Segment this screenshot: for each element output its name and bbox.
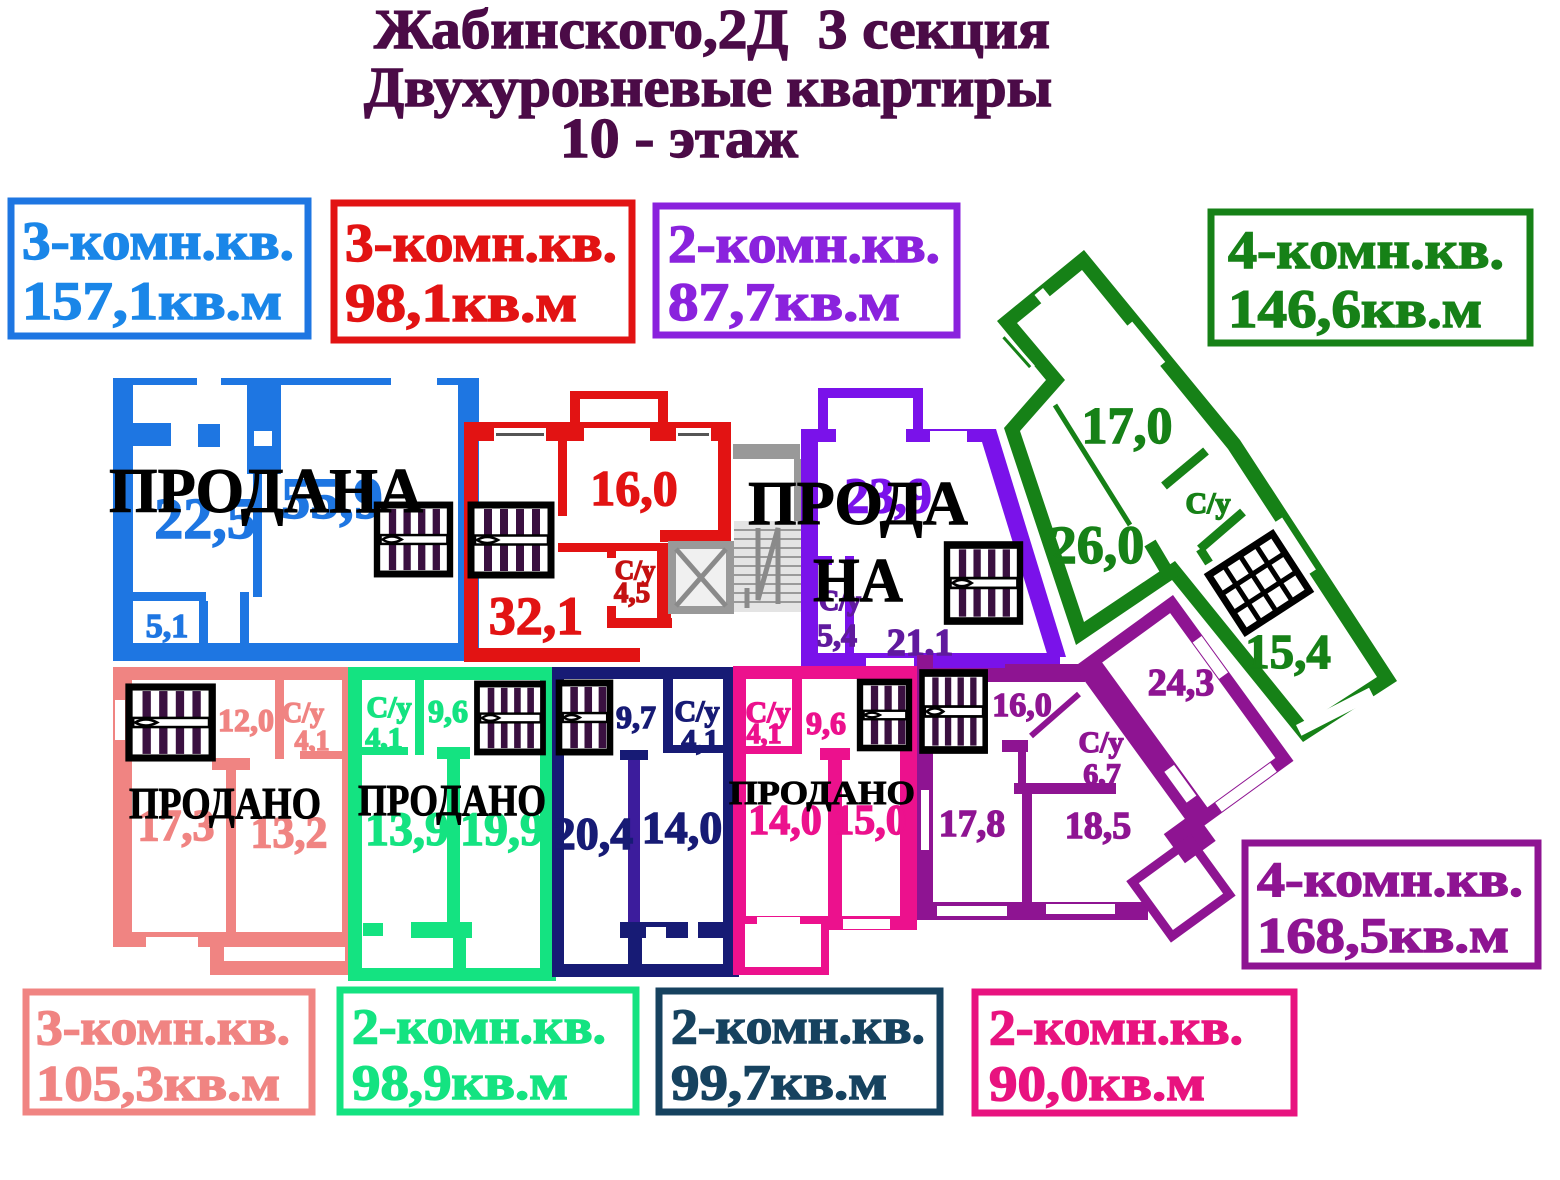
svg-text:Жабинского,2Д 3 секция: Жабинского,2Д 3 секция [374, 0, 1050, 61]
svg-text:16,0: 16,0 [590, 460, 678, 516]
svg-text:4,1: 4,1 [295, 726, 330, 757]
svg-text:3-комн.кв.: 3-комн.кв. [22, 211, 294, 271]
svg-text:ПРОДАНО: ПРОДАНО [729, 775, 915, 812]
svg-text:98,1кв.м: 98,1кв.м [345, 273, 577, 333]
svg-text:4-комн.кв.: 4-комн.кв. [1257, 851, 1523, 907]
svg-text:9,7: 9,7 [616, 699, 656, 735]
svg-text:90,0кв.м: 90,0кв.м [989, 1055, 1205, 1111]
svg-text:НА: НА [813, 547, 903, 615]
svg-text:ПРОДАНО: ПРОДАНО [129, 779, 321, 828]
svg-text:32,1: 32,1 [489, 586, 584, 646]
svg-text:16,0: 16,0 [992, 687, 1052, 724]
svg-text:12,0: 12,0 [218, 702, 274, 738]
svg-text:14,0: 14,0 [642, 802, 723, 853]
svg-text:24,3: 24,3 [1148, 662, 1215, 704]
svg-text:3-комн.кв.: 3-комн.кв. [36, 999, 290, 1055]
svg-text:ПРОДА: ПРОДА [748, 470, 968, 538]
svg-text:10 - этаж: 10 - этаж [560, 108, 798, 170]
svg-text:4,5: 4,5 [614, 577, 650, 609]
svg-text:4,1: 4,1 [681, 724, 719, 757]
svg-text:17,0: 17,0 [1082, 398, 1173, 455]
svg-text:ПРОДАНО: ПРОДАНО [358, 776, 546, 825]
svg-text:5,1: 5,1 [146, 608, 189, 645]
svg-text:157,1кв.м: 157,1кв.м [22, 271, 282, 331]
svg-text:2-комн.кв.: 2-комн.кв. [668, 214, 940, 274]
svg-text:С/у: С/у [367, 691, 412, 724]
svg-text:168,5кв.м: 168,5кв.м [1257, 907, 1509, 963]
svg-text:105,3кв.м: 105,3кв.м [36, 1055, 280, 1111]
svg-text:87,7кв.м: 87,7кв.м [668, 272, 900, 332]
svg-text:2-комн.кв.: 2-комн.кв. [671, 998, 925, 1054]
svg-text:9,6: 9,6 [428, 693, 468, 729]
svg-text:98,9кв.м: 98,9кв.м [352, 1054, 568, 1110]
svg-text:6,7: 6,7 [1083, 758, 1121, 791]
svg-text:20,4: 20,4 [553, 808, 634, 859]
svg-text:146,6кв.м: 146,6кв.м [1228, 279, 1482, 339]
svg-text:С/у: С/у [1186, 487, 1231, 520]
svg-text:99,7кв.м: 99,7кв.м [671, 1054, 887, 1110]
svg-text:26,0: 26,0 [1050, 515, 1145, 575]
svg-text:4,1: 4,1 [747, 719, 782, 750]
svg-text:4-комн.кв.: 4-комн.кв. [1228, 220, 1504, 280]
svg-text:ПРОДАНА: ПРОДАНА [109, 455, 423, 526]
svg-text:4,1: 4,1 [365, 722, 403, 755]
svg-text:3-комн.кв.: 3-комн.кв. [345, 213, 617, 273]
svg-text:С/у: С/у [1079, 726, 1124, 759]
svg-text:9,6: 9,6 [806, 705, 846, 741]
svg-text:15,4: 15,4 [1245, 624, 1331, 679]
svg-text:2-комн.кв.: 2-комн.кв. [989, 999, 1243, 1055]
svg-text:2-комн.кв.: 2-комн.кв. [352, 998, 606, 1054]
svg-text:17,8: 17,8 [939, 803, 1006, 845]
svg-text:5,4: 5,4 [817, 617, 857, 653]
svg-text:С/у: С/у [282, 698, 324, 729]
svg-text:18,5: 18,5 [1065, 805, 1132, 847]
